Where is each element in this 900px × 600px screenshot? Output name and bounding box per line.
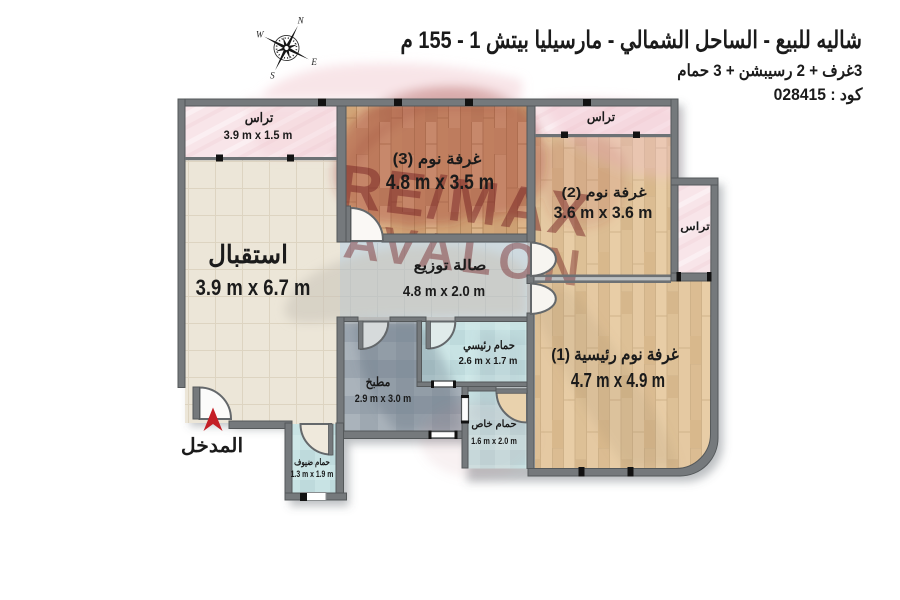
svg-text:E: E [310,57,317,67]
svg-text:S: S [270,71,275,81]
svg-text:W: W [256,29,265,39]
svg-text:N: N [297,15,305,25]
